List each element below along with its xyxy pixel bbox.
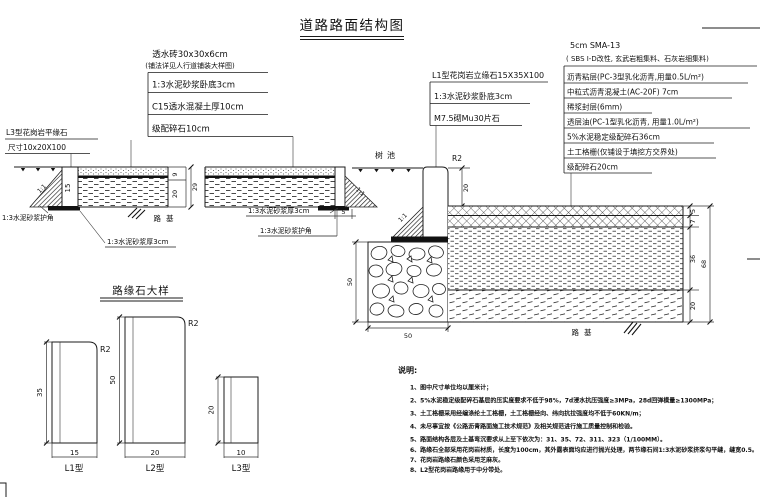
l1-height-dim: 35	[36, 388, 44, 397]
stone-height-dim: 50	[346, 278, 354, 286]
pavement-row-1: 沥青粘层(PC-3型乳化沥青,用量0.5L/m²)	[567, 72, 704, 82]
left-ground-line	[14, 167, 62, 171]
road-layer-dim-1: 5	[689, 209, 697, 213]
curb-profile-l3: 20 10 L3型	[208, 375, 259, 475]
dimension-chain-roadway: 5 7 36 20 68	[683, 204, 714, 325]
drawing-sheet: 道路路面结构图 透水砖30x30x6cm (铺法详见人行道铺装大样图) 1:3水…	[0, 0, 760, 497]
pavement-row-7: 级配碎石20cm	[567, 162, 618, 172]
l1-label: L1型	[65, 464, 84, 474]
sidewalk-material-header: 透水砖30x30x6cm	[152, 49, 228, 60]
pavement-row-6: 土工格栅(仅铺设于填挖方交界处)	[567, 147, 678, 157]
l3-height-dim: 20	[208, 406, 216, 415]
drawing-canvas: 道路路面结构图 透水砖30x30x6cm (铺法详见人行道铺装大样图) 1:3水…	[0, 0, 760, 497]
tree-edge-width-dim: 5	[341, 208, 345, 216]
note-2: 2、5%水泥稳定级配碎石基层的压实度要求不低于98%，7d浸水抗压强度≥3MPa…	[410, 397, 717, 405]
left-curb-height-dim: 15	[64, 184, 72, 193]
pavement-header: 5cm SMA-13	[570, 41, 620, 50]
dimension-chain-sidewalk: 9 20 29	[168, 165, 199, 210]
roadbed-text-left: 路基	[154, 213, 179, 223]
curb-header: L1型花岗岩立缘石15X35X100	[432, 70, 544, 80]
sidewalk-top-dim: 9	[171, 172, 179, 176]
note-1: 1、图中尺寸单位均以厘米计；	[410, 384, 492, 392]
left-slope-and-curb: 1:1 15 1:3水泥砂浆护角	[2, 167, 80, 222]
l2-width-dim: 20	[151, 449, 160, 457]
road-layer-dim-2: 7	[689, 219, 697, 223]
roadbed-label-left: 路基	[128, 208, 179, 223]
notes-block: 说明: 1、图中尺寸单位均以厘米计； 2、5%水泥稳定级配碎石基层的压实度要求不…	[398, 365, 758, 474]
road-layer-dim-4: 20	[689, 302, 697, 310]
page-title: 道路路面结构图	[300, 18, 405, 34]
stone-foundation	[368, 242, 448, 322]
stone-width-dim: 50	[404, 332, 412, 340]
road-total-dim: 68	[700, 260, 708, 268]
notes-heading: 说明:	[398, 365, 417, 375]
l2-height-dim: 50	[109, 376, 117, 385]
l2-label: L2型	[146, 464, 165, 474]
note-5: 5、路面结构各层及土基弯沉要求从上至下依次为：31、35、72、311、323（…	[410, 436, 666, 444]
l1-radius-label: R2	[100, 345, 111, 354]
l3-label: L3型	[232, 464, 251, 474]
pavement-row-3: 稀浆封层(6mm)	[567, 102, 622, 112]
mortar-corner-label-mid: 1:3水泥砂浆护角	[260, 226, 312, 235]
flat-curb-line-1: L3型花岗岩平缘石	[6, 127, 68, 137]
sidewalk-material-subheader: (铺法详见人行道铺装大样图)	[145, 61, 235, 70]
note-4: 4、未尽事宜按《公路沥青路面施工技术规范》及相关规范进行施工质量控制和检验。	[410, 423, 636, 431]
sidewalk-layer-row-2: C15透水混凝土厚10cm	[152, 102, 244, 113]
note-8: 8、L2型花岗岩路缘用于中分带处。	[410, 466, 506, 474]
pavement-row-4: 透层油(PC-1型乳化沥青, 用量1.0L/m²)	[567, 117, 699, 127]
slope-ratio-label-right: 1:1	[397, 212, 409, 224]
sidewalk-layer-row-1: 1:3水泥砂浆卧底3cm	[152, 80, 235, 91]
curb-row-2: M7.5砌Mu30片石	[434, 113, 500, 123]
mortar-corner-label-left: 1:3水泥砂浆护角	[2, 213, 54, 222]
sidewalk-total-dim: 29	[191, 183, 199, 191]
road-layer-dim-3: 36	[689, 255, 697, 263]
note-7: 7、花岗岩路缘石颜色采用芝麻灰。	[410, 456, 504, 464]
right-sidewalk-section	[205, 167, 349, 211]
note-6: 6、路缘石全部采用花岗岩材质，长度为100cm，其外露表面均应进行抛光处理，两节…	[410, 446, 758, 454]
sidewalk-base-dim: 20	[171, 190, 179, 198]
tree-pit-label: 树池	[375, 150, 399, 160]
tree-pit: 树池	[352, 150, 423, 172]
curb-detail-section: 路缘石大样 R2 35 15 L1型 R2	[36, 284, 258, 474]
curb-fillet-radius-label: R2	[452, 154, 462, 163]
roadbed-label-right: 路基	[572, 322, 642, 337]
left-sidewalk-section	[78, 167, 168, 207]
curb-profile-l1: R2 35 15 L1型	[36, 340, 111, 475]
roadbed-text-right: 路基	[572, 327, 597, 337]
mortar-bed-label-left: 1:3水泥砂浆厚3cm	[107, 237, 169, 246]
title-block: 道路路面结构图	[300, 18, 405, 40]
sidewalk-layer-row-3: 级配碎石10cm	[152, 124, 210, 135]
mortar-bed-label-mid: 1:3水泥砂浆厚3cm	[248, 206, 310, 215]
flat-curb-line-2: 尺寸10x20X100	[8, 142, 66, 152]
note-3: 3、土工格栅采用经编涤纶土工格栅，土工格栅经向、纬向抗拉强度均不低于60KN/m…	[410, 410, 645, 418]
pavement-subheader: ( SBS I-D改性, 玄武岩粗集料、石灰岩细集料)	[566, 54, 709, 63]
curb-row-1: 1:3水泥砂浆卧底3cm	[434, 91, 512, 101]
roadway-layers	[448, 206, 683, 322]
curb-detail-title: 路缘石大样	[112, 284, 170, 297]
l3-width-dim: 10	[237, 449, 246, 457]
curb-reveal-dim: 20	[462, 184, 470, 192]
l2-radius-label: R2	[188, 319, 199, 328]
pavement-row-2: 中粒式沥青混凝土(AC-20F) 7cm	[567, 87, 678, 97]
pavement-row-5: 5%水泥稳定级配碎石36cm	[567, 132, 660, 142]
curb-profile-l2: R2 50 20 L2型	[109, 315, 199, 475]
l1-width-dim: 15	[70, 449, 79, 457]
